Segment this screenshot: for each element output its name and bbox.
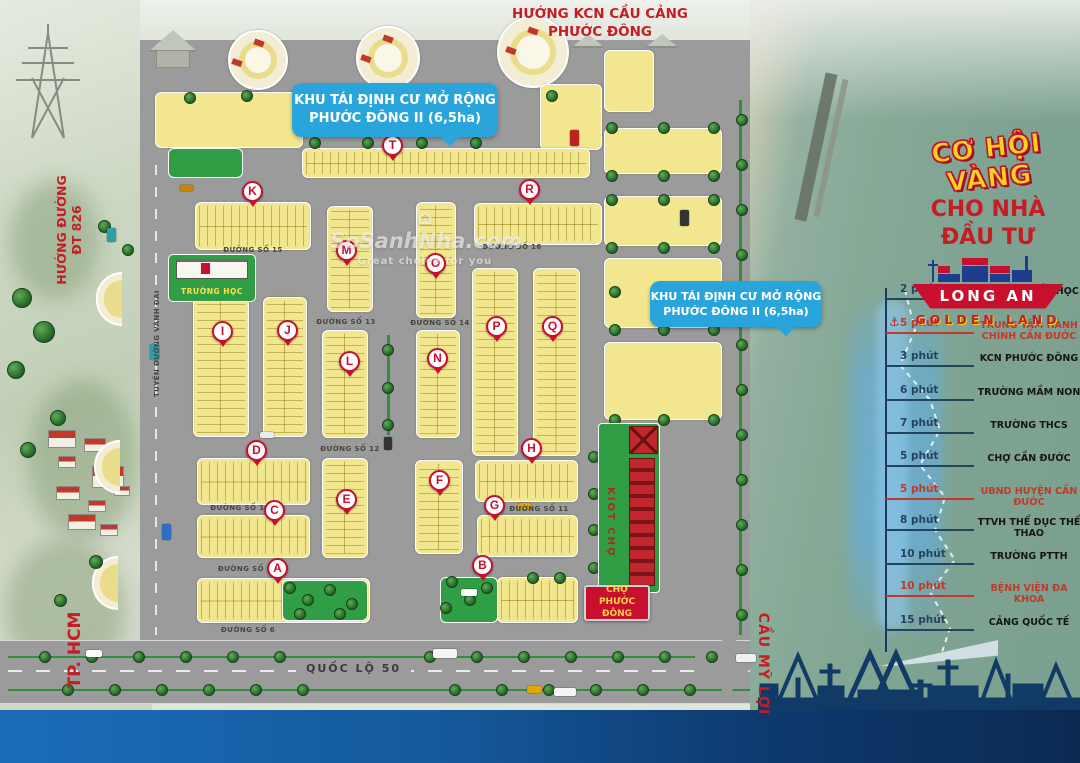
land-block	[604, 342, 722, 420]
logo-sub1: CHO NHÀ	[893, 198, 1080, 222]
tree-icon	[518, 651, 530, 663]
land-block	[416, 330, 460, 438]
direction-bridge-label: CẦU MỸ LỢI	[753, 608, 771, 720]
timeline-item: 5 phútCHỢ CẦN ĐƯỚC	[886, 450, 1080, 480]
school-label: TRƯỜNG HỌC	[169, 287, 255, 296]
street-label: ĐƯỜNG SỐ 13	[301, 318, 391, 328]
green-area	[168, 148, 243, 178]
tree-icon	[658, 122, 670, 134]
tree-icon	[133, 651, 145, 663]
vehicle-icon	[260, 432, 274, 438]
direction-kcn-line2: PHƯỚC ĐÔNG	[505, 24, 695, 42]
building-icon	[68, 514, 96, 530]
tree-icon	[227, 651, 239, 663]
block-marker-d: D	[246, 440, 267, 461]
timeline-label: TRƯỜNG THCS	[976, 420, 1080, 431]
street-label: ĐƯỜNG SỐ 14	[395, 319, 485, 329]
timeline-label: TTVH THỂ DỤC THỂ THAO	[976, 517, 1080, 539]
timeline-tick	[886, 498, 974, 500]
logo-brand: LONG AN	[912, 284, 1064, 309]
land-block	[193, 297, 249, 437]
vehicle-icon	[680, 210, 689, 226]
tree-icon	[324, 584, 336, 596]
timeline-time: 8 phút	[900, 514, 938, 526]
school-building-icon	[176, 259, 248, 279]
block-marker-q: Q	[542, 316, 563, 337]
timeline-item: 8 phútTTVH THỂ DỤC THỂ THAO	[886, 514, 1080, 544]
tree-icon	[496, 684, 508, 696]
block-marker-h: H	[521, 438, 542, 459]
tree-icon	[736, 204, 748, 216]
tree-icon	[736, 474, 748, 486]
tree-icon	[684, 684, 696, 696]
timeline-item: 3 phútKCN PHƯỚC ĐÔNG	[886, 350, 1080, 380]
tree-icon	[708, 414, 720, 426]
timeline-tick	[886, 629, 974, 631]
direction-dt826-line1: HƯỚNG ĐƯỜNG	[54, 145, 69, 315]
block-marker-n: N	[427, 348, 448, 369]
street-label: ĐƯỜNG SỐ 12	[305, 445, 395, 455]
block-marker-f: F	[429, 470, 450, 491]
land-block	[497, 577, 578, 623]
tree-icon	[284, 582, 296, 594]
direction-kcn-line1: HƯỚNG KCN CẦU CẢNG	[505, 6, 695, 24]
timeline-tick	[886, 563, 974, 565]
block-marker-g: G	[484, 495, 505, 516]
tree-icon	[382, 419, 394, 431]
water-tower-icon	[156, 50, 190, 68]
tree-icon	[658, 170, 670, 182]
timeline-tick	[886, 365, 974, 367]
timeline-item: 5 phútUBND HUYỆN CẦN ĐƯỚC	[886, 483, 1080, 513]
tree-icon	[546, 90, 558, 102]
tree-icon	[184, 92, 196, 104]
vehicle-icon	[433, 649, 457, 658]
tree-icon	[606, 170, 618, 182]
land-block	[533, 268, 580, 456]
tree-icon	[736, 339, 748, 351]
land-block	[604, 50, 654, 112]
timeline-label: UBND HUYỆN CẦN ĐƯỚC	[976, 486, 1080, 508]
street-label: ĐƯỜNG SỐ 11	[494, 505, 584, 515]
timeline-tick	[886, 529, 974, 531]
tree-icon	[565, 651, 577, 663]
vehicle-icon	[86, 650, 102, 657]
tree-icon	[736, 609, 748, 621]
tree-icon	[382, 344, 394, 356]
resettlement-callout-top: KHU TÁI ĐỊNH CƯ MỞ RỘNG PHƯỚC ĐÔNG II (6…	[292, 83, 498, 137]
callout-line1: KHU TÁI ĐỊNH CƯ MỞ RỘNG	[292, 92, 498, 110]
river-haze	[750, 0, 1080, 120]
market-sign: CHỢ PHƯỚC ĐÔNG	[584, 585, 650, 621]
tree-icon	[440, 602, 452, 614]
tree-icon	[203, 684, 215, 696]
timeline-label: TRƯỜNG PTTH	[976, 551, 1080, 562]
tree-icon	[736, 429, 748, 441]
block-marker-j: J	[277, 320, 298, 341]
tree-icon	[736, 249, 748, 261]
school-area: TRƯỜNG HỌC	[168, 254, 256, 302]
kiosk-row-icon	[629, 458, 655, 586]
market-sign-line2: PHƯỚC ĐÔNG	[586, 597, 648, 620]
median-strip	[739, 100, 742, 635]
block-marker-r: R	[519, 179, 540, 200]
tree-icon	[89, 555, 103, 569]
vehicle-icon	[461, 589, 477, 596]
watermark-name: ⌂ SoSanhNha.com	[330, 205, 520, 253]
building-icon	[100, 524, 118, 536]
footer-band	[0, 710, 1080, 763]
building-icon	[48, 430, 76, 448]
tree-icon	[527, 572, 539, 584]
tree-icon	[606, 194, 618, 206]
tree-icon	[736, 159, 748, 171]
timeline-item: 10 phútTRƯỜNG PTTH	[886, 548, 1080, 578]
timeline-time: 5 phút	[900, 450, 938, 462]
project-logo: CƠ HỘI VÀNG CHO NHÀ ĐẦU TƯ LONG AN GOLDE…	[893, 134, 1080, 327]
tree-icon	[612, 651, 624, 663]
tree-icon	[446, 576, 458, 588]
school-flag-icon	[201, 263, 210, 274]
vehicle-icon	[570, 130, 579, 146]
block-marker-l: L	[339, 351, 360, 372]
tree-icon	[362, 137, 374, 149]
block-marker-c: C	[264, 500, 285, 521]
roundabout-park	[356, 26, 420, 90]
timeline-time: 10 phút	[900, 580, 946, 592]
tree-icon	[274, 651, 286, 663]
vehicle-icon	[554, 688, 576, 696]
block-marker-p: P	[486, 316, 507, 337]
vehicle-icon	[162, 524, 171, 540]
timeline-time: 15 phút	[900, 614, 946, 626]
vehicle-icon	[180, 185, 193, 191]
tree-icon	[33, 321, 55, 343]
direction-dt826-line2: ĐT 826	[69, 145, 84, 315]
tree-icon	[708, 170, 720, 182]
tree-icon	[706, 651, 718, 663]
tree-icon	[658, 414, 670, 426]
lane-marking	[155, 165, 157, 635]
tree-icon	[736, 384, 748, 396]
tree-icon	[7, 361, 25, 379]
tree-icon	[449, 684, 461, 696]
street-label: TUYẾN ĐƯỜNG VÀNH ĐAI	[153, 307, 163, 397]
vehicle-icon	[527, 686, 542, 693]
timeline-label: BỆNH VIỆN ĐA KHOA	[976, 583, 1080, 605]
timeline-label: CHỢ CẦN ĐƯỚC	[976, 453, 1080, 464]
tree-icon	[50, 410, 66, 426]
timeline-label: CẢNG QUỐC TẾ	[976, 617, 1080, 628]
timeline-item: 6 phútTRƯỜNG MẦM NON	[886, 384, 1080, 414]
block-marker-k: K	[242, 181, 263, 202]
building-icon	[58, 456, 76, 468]
tree-icon	[39, 651, 51, 663]
tree-icon	[736, 564, 748, 576]
market-sign-line1: CHỢ	[586, 585, 648, 597]
land-block	[197, 515, 310, 558]
watermark-tagline: Great choice for you	[330, 256, 520, 267]
tree-icon	[250, 684, 262, 696]
callout-line2: PHƯỚC ĐÔNG II (6,5ha)	[292, 110, 498, 128]
logo-sub2: ĐẦU TƯ	[893, 226, 1080, 250]
watermark: ⌂ SoSanhNha.com Great choice for you	[330, 205, 520, 267]
port-silhouette	[758, 640, 1080, 712]
land-block	[604, 128, 722, 174]
land-block	[472, 268, 518, 456]
block-marker-b: B	[472, 555, 493, 576]
timeline-time: 5 phút	[900, 483, 938, 495]
tree-icon	[609, 286, 621, 298]
timeline-tick	[886, 399, 974, 401]
tree-icon	[334, 608, 346, 620]
logo-headline: CƠ HỘI VÀNG	[890, 124, 1080, 204]
tree-icon	[708, 122, 720, 134]
building-icon	[56, 486, 80, 500]
tree-icon	[609, 324, 621, 336]
market-kiosk-area: KIOT CHỢ	[598, 423, 660, 593]
timeline-label: TRƯỜNG MẦM NON	[976, 387, 1080, 398]
highway-label: QUỐC LỘ 50	[296, 662, 411, 675]
tree-icon	[637, 684, 649, 696]
tree-icon	[471, 651, 483, 663]
tree-icon	[659, 651, 671, 663]
timeline-item: 7 phútTRƯỜNG THCS	[886, 417, 1080, 447]
timeline-tick	[886, 332, 974, 334]
logo-brand-sub: GOLDEN LAND	[893, 312, 1080, 327]
land-block	[302, 148, 590, 178]
tree-icon	[554, 572, 566, 584]
tree-icon	[20, 442, 36, 458]
tree-icon	[606, 122, 618, 134]
roundabout-park	[228, 30, 288, 90]
timeline-time: 3 phút	[900, 350, 938, 362]
tree-icon	[736, 114, 748, 126]
kiosk-label: KIOT CHỢ	[605, 460, 616, 584]
tree-icon	[180, 651, 192, 663]
tree-icon	[109, 684, 121, 696]
block-marker-t: T	[382, 135, 403, 156]
callout-line2: PHƯỚC ĐÔNG II (6,5ha)	[650, 304, 822, 319]
street-label: ĐƯỜNG SỐ 6	[203, 626, 293, 636]
tree-icon	[590, 684, 602, 696]
tree-icon	[346, 598, 358, 610]
market-hall-icon	[629, 426, 658, 454]
vehicle-icon	[107, 228, 116, 242]
direction-hcm-label: TP. HCM	[65, 595, 85, 705]
direction-kcn-label: HƯỚNG KCN CẦU CẢNG PHƯỚC ĐÔNG	[505, 6, 695, 41]
tree-icon	[658, 194, 670, 206]
callout-line1: KHU TÁI ĐỊNH CƯ MỞ RỘNG	[650, 289, 822, 304]
timeline-time: 7 phút	[900, 417, 938, 429]
street-label: ĐƯỜNG SỐ 15	[208, 246, 298, 256]
tree-icon	[416, 137, 428, 149]
timeline-time: 6 phút	[900, 384, 938, 396]
tree-icon	[382, 382, 394, 394]
tree-icon	[736, 519, 748, 531]
tree-icon	[658, 242, 670, 254]
timeline-tick	[886, 465, 974, 467]
timeline-time: 10 phút	[900, 548, 946, 560]
timeline-tick	[886, 595, 974, 597]
block-marker-a: A	[267, 558, 288, 579]
tree-icon	[122, 244, 134, 256]
tree-icon	[156, 684, 168, 696]
timeline-label: KCN PHƯỚC ĐÔNG	[976, 353, 1080, 364]
tree-icon	[309, 137, 321, 149]
anchor-icon: ⚓	[889, 315, 900, 329]
tree-icon	[294, 608, 306, 620]
tree-icon	[606, 242, 618, 254]
tree-icon	[470, 137, 482, 149]
land-block	[155, 92, 303, 148]
timeline-item: 10 phútBỆNH VIỆN ĐA KHOA	[886, 580, 1080, 610]
tree-icon	[708, 242, 720, 254]
median-strip	[8, 656, 758, 658]
block-marker-i: I	[212, 321, 233, 342]
tree-icon	[297, 684, 309, 696]
tree-icon	[708, 194, 720, 206]
masterplan-map: TRƯỜNG HỌC KIOT CHỢ CHỢ PHƯỚC ĐÔNG HƯỚNG…	[0, 0, 1080, 763]
block-marker-e: E	[336, 489, 357, 510]
timeline-tick	[886, 432, 974, 434]
tree-icon	[241, 90, 253, 102]
tree-icon	[302, 594, 314, 606]
power-tower-icon	[2, 18, 94, 143]
resettlement-callout-right: KHU TÁI ĐỊNH CƯ MỞ RỘNG PHƯỚC ĐÔNG II (6…	[650, 281, 822, 327]
direction-dt826-label: HƯỚNG ĐƯỜNG ĐT 826	[54, 145, 90, 315]
building-icon	[88, 500, 106, 512]
land-block	[322, 330, 368, 438]
tree-icon	[12, 288, 32, 308]
